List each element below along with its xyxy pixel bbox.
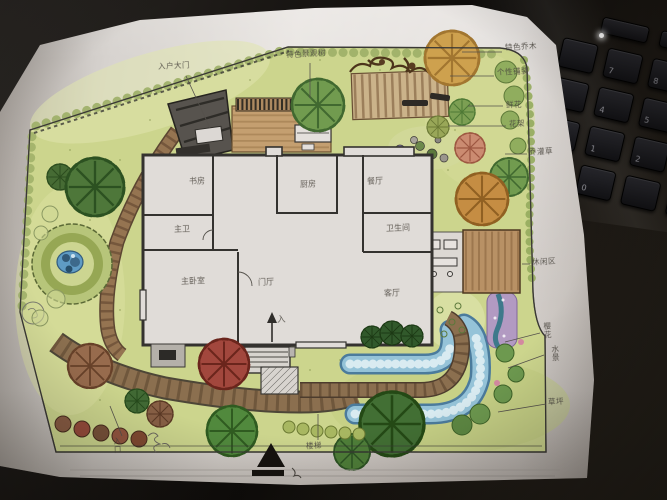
label-water-feature: 水景: [550, 345, 562, 363]
room-label-bathroom: 卫生间: [386, 222, 410, 234]
room-label-foyer: 门厅: [258, 276, 274, 288]
label-cherry: 樱花: [542, 322, 554, 340]
room-label-kitchen: 厨房: [300, 178, 316, 190]
label-pergola: 花架: [509, 118, 526, 130]
label-specimen-trees: 特色乔木: [505, 40, 538, 53]
label-special-paving: 个性铺装: [497, 65, 530, 78]
label-enter-arrow: 入: [277, 313, 287, 325]
label-entrance: 入口: [112, 437, 124, 455]
room-label-study: 书房: [189, 175, 205, 187]
room-label-master-bed: 主卧室: [181, 275, 205, 287]
label-lawn: 草坪: [548, 396, 565, 408]
label-entry-gate: 入户大门: [158, 59, 191, 72]
label-leisure-area: 休闲区: [532, 255, 557, 267]
room-label-dining: 餐厅: [367, 175, 383, 187]
label-flowers: 鲜花: [506, 99, 523, 111]
label-tree-shrub-grass: 乔灌草: [529, 145, 554, 157]
photo-scene: 7 8 9 4 5 6 1 2 3 0: [0, 0, 667, 500]
room-label-master-bath: 主卫: [174, 223, 190, 235]
label-feature-tree: 特色景观树: [286, 47, 327, 60]
room-label-living: 客厅: [384, 287, 400, 299]
label-stairs: 楼梯: [306, 440, 323, 452]
plan-labels: 书房 主卫 厨房 餐厅 卫生间 主卧室 门厅 客厅 入户大门 特色景观树 特色乔…: [0, 0, 667, 500]
